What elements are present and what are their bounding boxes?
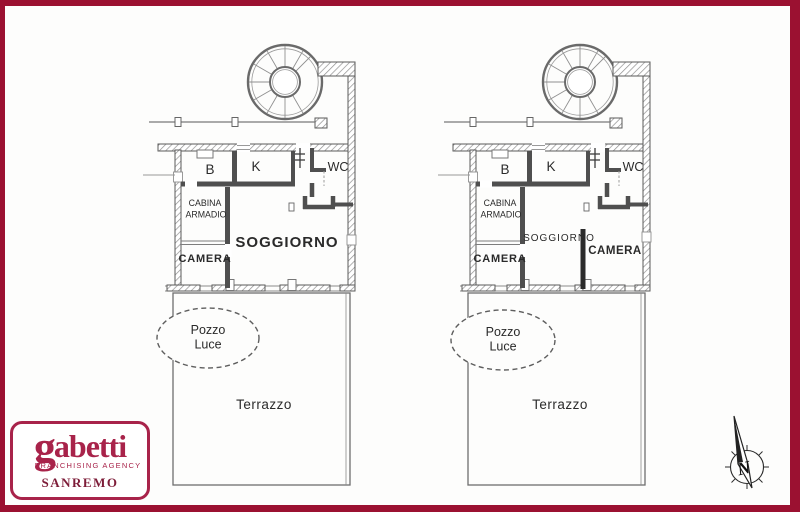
logo-city: SANREMO bbox=[13, 475, 147, 491]
room-label-living: SOGGIORNO bbox=[523, 233, 595, 244]
floor-plan-right: B K WC CABINA ARMADIO CAMERA SOGGIORNO C… bbox=[458, 32, 673, 487]
stair-corridor-wall bbox=[613, 62, 650, 76]
terrace-label: Terrazzo bbox=[532, 397, 588, 412]
room-label-closet-2: ARMADIO bbox=[185, 210, 226, 220]
room-label-kitchen: K bbox=[251, 159, 260, 174]
agency-logo: gabetti FRANCHISING AGENCY SANREMO bbox=[10, 421, 150, 500]
logo-brand-initial: g bbox=[34, 423, 55, 472]
room-label-bedroom2: CAMERA bbox=[588, 245, 641, 257]
room-label-wc: WC bbox=[623, 160, 644, 174]
room-label-living: SOGGIORNO bbox=[235, 234, 338, 251]
lightwell-label-1: Pozzo bbox=[486, 325, 521, 339]
room-label-bath: B bbox=[500, 162, 509, 177]
room-label-closet-1: CABINA bbox=[484, 198, 517, 208]
compass-north-label: N bbox=[734, 457, 753, 480]
floor-plan-left: B K WC CABINA ARMADIO CAMERA SOGGIORNO P… bbox=[163, 32, 378, 487]
stair-landing-block bbox=[315, 118, 327, 128]
scanned-floorplan-page: B K WC CABINA ARMADIO CAMERA SOGGIORNO P… bbox=[0, 0, 800, 512]
stair-corridor-wall bbox=[318, 62, 355, 76]
stair-landing-block bbox=[610, 118, 622, 128]
room-label-bedroom: CAMERA bbox=[473, 253, 526, 265]
room-label-kitchen: K bbox=[546, 159, 555, 174]
logo-brand-rest: abetti bbox=[54, 428, 126, 464]
terrace-label: Terrazzo bbox=[236, 397, 292, 412]
room-label-wc: WC bbox=[328, 160, 349, 174]
spiral-staircase-icon bbox=[248, 45, 322, 119]
lightwell-label-1: Pozzo bbox=[191, 323, 226, 337]
lightwell-label-2: Luce bbox=[194, 338, 221, 352]
logo-brand-text: gabetti bbox=[13, 428, 147, 461]
north-compass-icon: N bbox=[710, 392, 790, 507]
spiral-staircase-icon bbox=[543, 45, 617, 119]
lightwell-label-2: Luce bbox=[489, 340, 516, 354]
room-label-bedroom: CAMERA bbox=[178, 253, 231, 265]
room-label-bath: B bbox=[205, 162, 214, 177]
room-label-closet-2: ARMADIO bbox=[480, 210, 521, 220]
room-label-closet-1: CABINA bbox=[189, 198, 222, 208]
